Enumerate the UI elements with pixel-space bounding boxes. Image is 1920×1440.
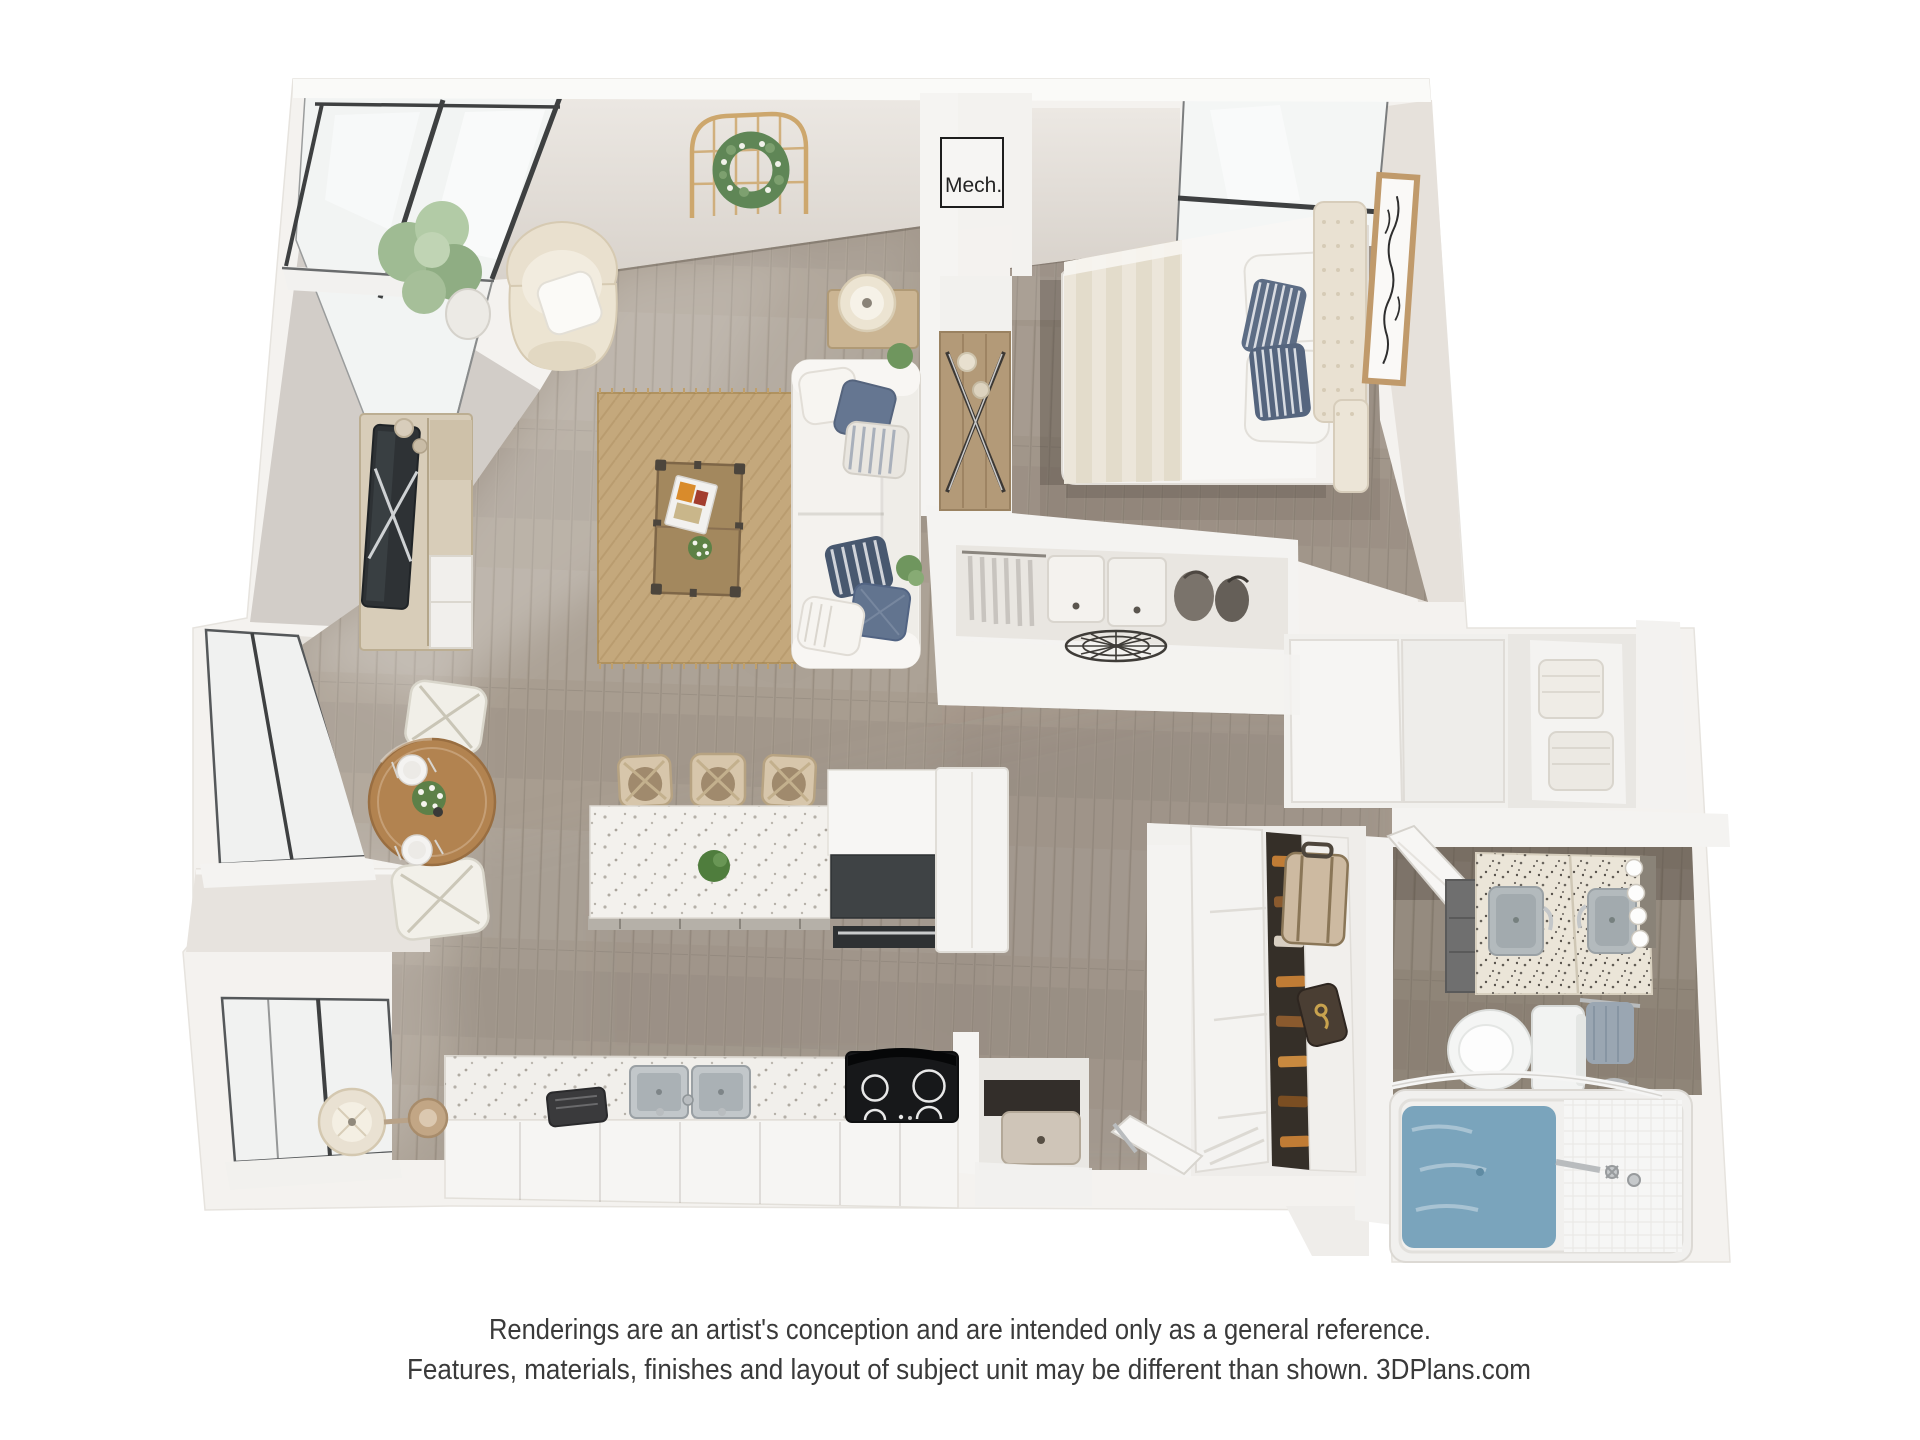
svg-text:Features, materials, finishes: Features, materials, finishes and layout… [407,1354,1531,1386]
svg-text:Renderings are an artist's con: Renderings are an artist's conception an… [489,1314,1431,1346]
svg-text:Mech.: Mech. [945,174,1002,197]
